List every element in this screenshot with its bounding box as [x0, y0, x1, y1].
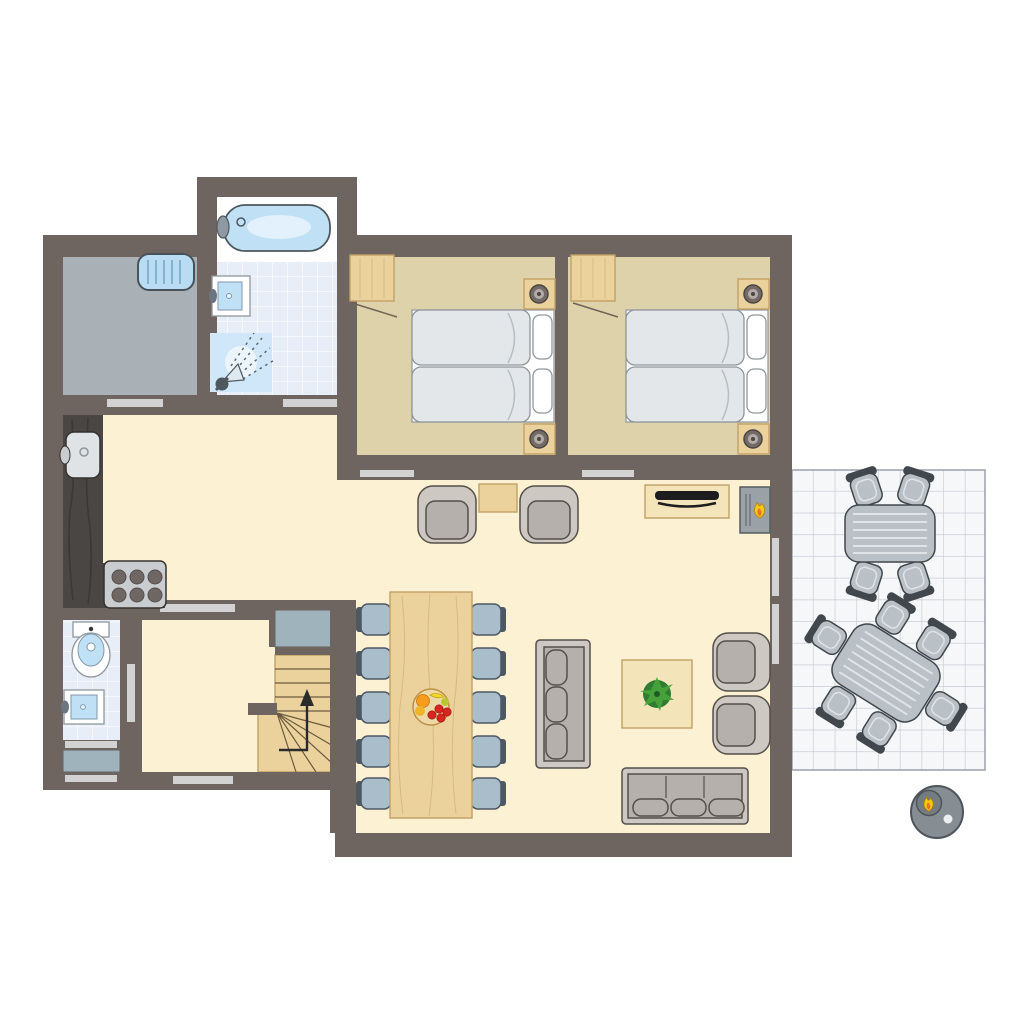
armchair — [418, 486, 476, 543]
utility-door-marker — [107, 399, 163, 407]
bathtub — [217, 205, 330, 251]
lounge-chair — [713, 633, 770, 691]
floor-plan-page — [0, 0, 1024, 1024]
hallway-door-marker — [160, 604, 235, 612]
nightstand-with-lamp — [524, 424, 555, 454]
kitchen-sink — [60, 432, 100, 478]
bathroom-door-marker — [283, 399, 337, 407]
side-table — [479, 484, 517, 512]
round-bbq — [911, 786, 963, 838]
bathtub-faucet — [217, 216, 229, 238]
wall-fireplace — [740, 487, 770, 533]
tv — [655, 491, 719, 500]
nightstand-with-lamp — [738, 424, 769, 454]
sofa-horizontal — [622, 768, 748, 824]
nightstand-with-lamp — [524, 279, 555, 309]
nightstand-with-lamp — [738, 279, 769, 309]
floor-plan — [0, 0, 1024, 1024]
radiator — [138, 254, 194, 290]
vestibule-entry-marker — [65, 775, 117, 782]
vestibule-mat — [63, 750, 120, 772]
bedroom-2-door-marker — [582, 470, 634, 477]
dining-set — [356, 592, 506, 818]
terrace-window-1 — [772, 538, 779, 596]
stove — [104, 561, 166, 608]
double-bed — [412, 310, 554, 422]
toilet — [72, 622, 110, 677]
pillow — [747, 315, 766, 359]
washbasin-faucet — [209, 289, 217, 303]
bedroom-1-door-marker — [360, 470, 414, 477]
double-bed — [626, 310, 768, 422]
front-entrance-marker — [173, 776, 233, 784]
patio-table-small — [845, 505, 935, 562]
bathroom-washbasin — [209, 276, 250, 316]
stair-closet — [275, 610, 333, 647]
toilet-washbasin — [61, 690, 104, 724]
terrace-window-2 — [772, 604, 779, 664]
pillow — [747, 369, 766, 413]
sofa-vertical — [536, 640, 590, 768]
tv-cabinet — [645, 485, 729, 518]
armchair — [520, 486, 578, 543]
toilet-door-marker — [127, 664, 135, 722]
lounge-chair — [713, 696, 770, 754]
kitchen-faucet — [60, 446, 70, 464]
toilet-basin-faucet — [61, 701, 69, 714]
shower — [210, 333, 276, 392]
toilet-vestibule-marker — [65, 741, 117, 748]
pillow — [533, 369, 552, 413]
coffee-table-with-plant — [622, 660, 692, 728]
pillow — [533, 315, 552, 359]
